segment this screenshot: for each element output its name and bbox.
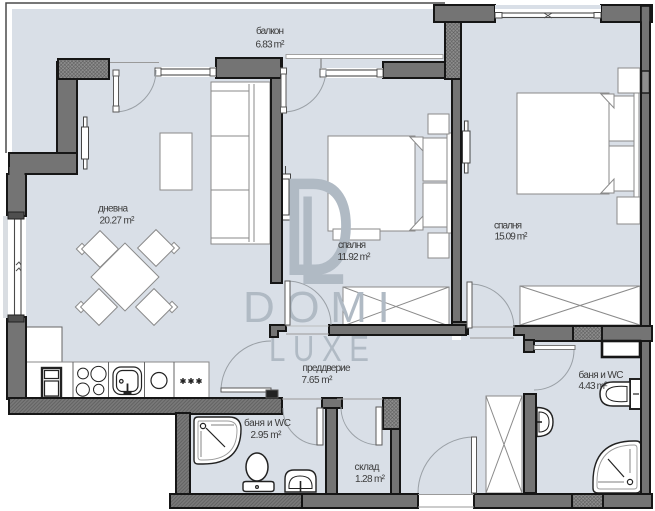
svg-text:11.92 m²: 11.92 m² [338,252,372,263]
svg-text:баня и WC: баня и WC [579,369,624,381]
svg-text:преддверие: преддверие [303,363,351,374]
svg-text:спалня: спалня [338,240,366,251]
svg-text:дневна: дневна [98,204,128,215]
svg-text:7.65 m²: 7.65 m² [302,375,334,386]
svg-text:15.09 m²: 15.09 m² [495,232,529,243]
svg-text:баня и WC: баня и WC [244,417,291,429]
svg-text:спалня: спалня [494,220,522,231]
svg-text:балкон: балкон [256,25,284,37]
svg-text:2.95 m²: 2.95 m² [251,430,283,441]
svg-text:склад: склад [355,462,380,473]
svg-text:20.27 m²: 20.27 m² [100,216,136,227]
svg-text:1.28 m²: 1.28 m² [355,474,386,485]
svg-text:6.83 m²: 6.83 m² [256,40,286,51]
svg-text:4.43 m²: 4.43 m² [579,381,609,392]
